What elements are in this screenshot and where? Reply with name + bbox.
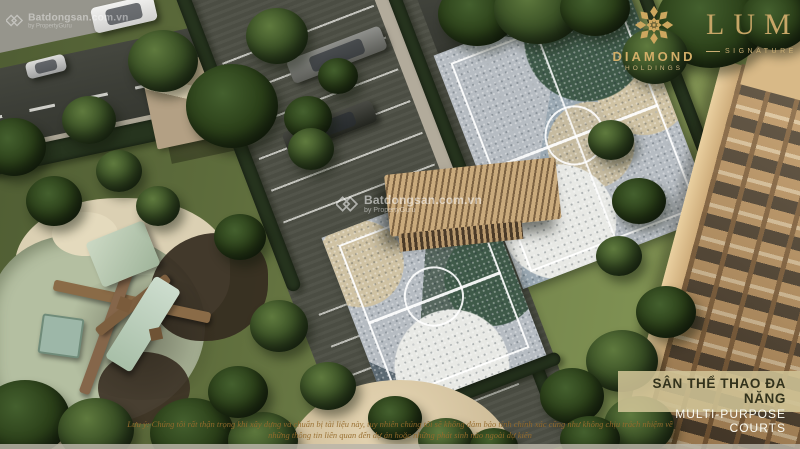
signature-rule [706,51,720,52]
tree [612,178,666,224]
lumi-brand-name: LUMI [706,8,800,42]
watermark: Batdongsan.com.vn by PropertyGuru [6,12,128,29]
tree [318,58,358,94]
caption-band: SÂN THỂ THAO ĐA NĂNG MULTI-PURPOSE COURT… [618,371,800,412]
watermark: Batdongsan.com.vn by PropertyGuru [336,193,482,215]
tree [136,186,180,226]
lumi-brand-sub: SIGNATURE [725,48,797,55]
tree [26,176,82,226]
watermark-text: Batdongsan.com.vn [364,194,482,207]
batdongsan-logo-icon [6,12,23,29]
aerial-masterplan-render: Batdongsan.com.vn by PropertyGuru Batdon… [0,0,800,449]
diamond-emblem-icon [631,2,677,48]
diamond-brand-sub: HOLDINGS [606,65,702,72]
disclaimer: Lưu ý: Chúng tôi rất thận trọng khi xây … [0,419,800,441]
disclaimer-line-1: Lưu ý: Chúng tôi rất thận trọng khi xây … [0,419,800,430]
tree [636,286,696,338]
diamond-brand-name: DIAMOND [606,49,702,64]
play-platform [149,327,163,341]
tree [246,8,308,64]
lumi-signature-logo: LUMI SIGNATURE [706,8,800,55]
tree [96,150,142,192]
play-cabin [37,313,84,358]
tree [62,96,116,144]
tree [588,120,634,160]
tree [186,64,278,148]
tree [596,236,642,276]
disclaimer-line-2: những thông tin liên quan đến dự án hoặc… [0,430,800,441]
bottom-curb [0,444,800,449]
caption-title-vi: SÂN THỂ THAO ĐA NĂNG [618,376,786,406]
diamond-holdings-logo: DIAMOND HOLDINGS [606,2,702,72]
watermark-subtext: by PropertyGuru [28,23,128,29]
watermark-subtext: by PropertyGuru [364,207,482,214]
tree [288,128,334,170]
tree [128,30,198,92]
tree [208,366,268,418]
tree [214,214,266,260]
batdongsan-logo-icon [336,193,358,215]
tree [250,300,308,352]
tree [300,362,356,410]
watermark-text: Batdongsan.com.vn [28,12,128,23]
